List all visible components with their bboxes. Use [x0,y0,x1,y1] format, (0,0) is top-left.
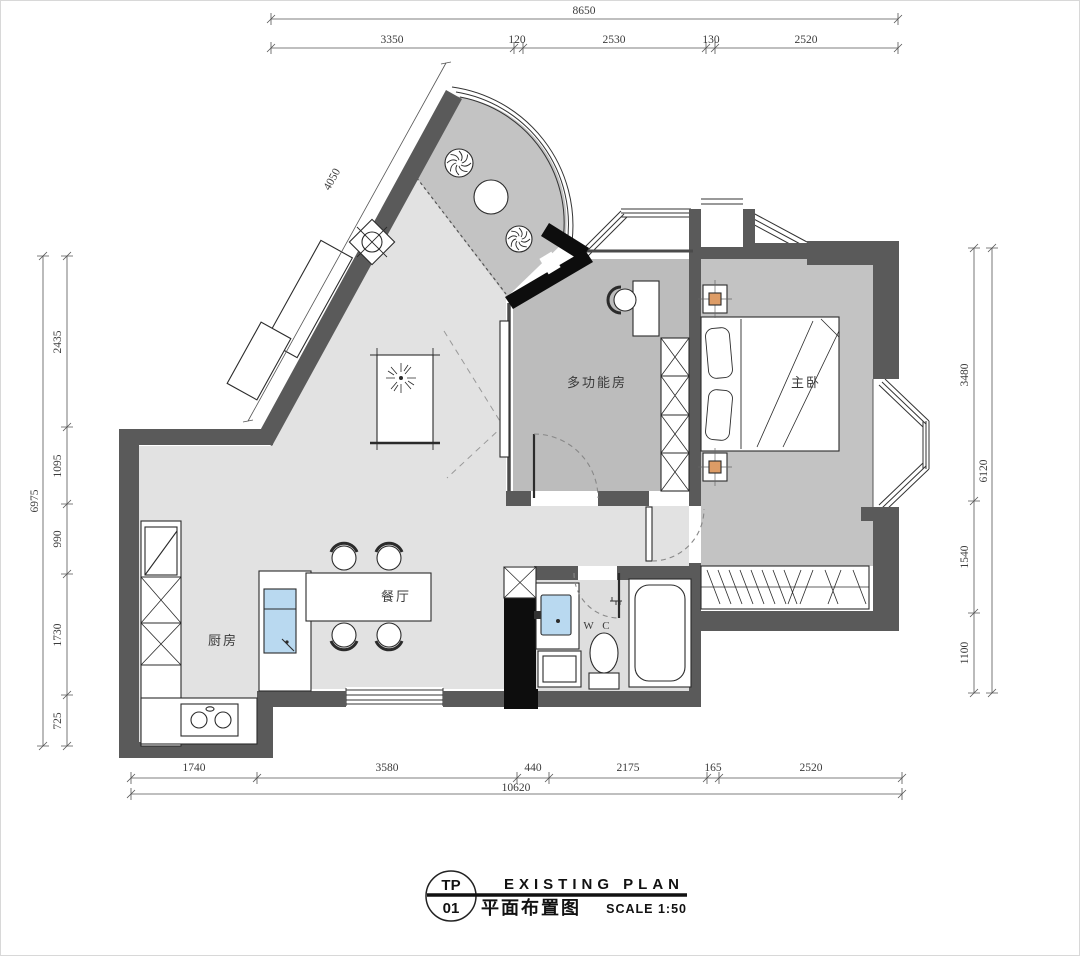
fan-icon [445,149,473,177]
dim-bottom-seg-1: 3580 [376,762,399,774]
sink-icon [541,595,571,635]
nightstand [698,448,732,486]
label-master-bedroom: 主卧 [791,375,821,390]
washing-machine-icon [538,651,581,687]
sheet-number: 01 [443,900,460,917]
bathtub-icon [629,579,691,687]
dim-left-seg-1: 1095 [52,454,64,477]
dim-top-seg-2: 2530 [603,34,626,46]
title-block: TP 01 EXISTING PLAN 平面布置图 SCALE 1:50 [426,871,687,921]
dim-right-total: 6120 [978,459,990,482]
dim-top-total: 8650 [573,5,596,17]
title-chinese: 平面布置图 [481,897,581,918]
ac-platform-window [701,199,743,204]
fan-icon [506,226,532,252]
toilet-icon [589,633,619,689]
dim-top-seg-1: 120 [508,34,526,46]
title-english: EXISTING PLAN [504,876,684,893]
bay-window [873,379,929,511]
tv-console [500,321,509,457]
pillow [705,389,733,441]
dim-top-seg-4: 2520 [795,34,818,46]
wc-vanity [534,583,579,649]
dim-top-seg-3: 130 [702,34,720,46]
scale-label: SCALE 1:50 [606,902,687,916]
top-horizontal-window [621,209,691,217]
dim-left-seg-2: 990 [52,530,64,548]
dim-left-seg-3: 1730 [52,623,64,646]
dim-left [37,252,73,750]
dim-left-seg-4: 725 [52,712,64,730]
dim-left-seg-0: 2435 [52,330,64,353]
dim-bottom-seg-2: 440 [524,762,542,774]
label-dining-room: 餐厅 [381,589,411,604]
label-kitchen: 厨房 [208,633,238,648]
bedroom-closet [701,566,869,609]
dim-bottom-seg-5: 2520 [800,762,823,774]
label-wc: W C [583,620,612,632]
dim-right-seg-2: 1100 [959,641,971,664]
nightstand [698,280,732,318]
stove-icon [181,704,238,736]
bottom-black-column [504,689,538,709]
dim-bottom-total: 10620 [502,782,531,794]
floor-plan-svg: 8650 3350 120 2530 130 2520 1740 3580 44… [1,1,1080,956]
dim-left-total: 6975 [29,489,41,512]
bottom-window [346,687,443,707]
dim-right-seg-1: 1540 [959,545,971,568]
dim-bottom-seg-0: 1740 [183,762,206,774]
mfr-wardrobe [661,338,689,491]
label-multifunction-room: 多功能房 [567,375,627,390]
fridge-icon [264,589,296,653]
kitchen-peninsula [259,571,311,691]
pipe-shaft [504,598,536,689]
sheet-prefix: TP [441,877,460,894]
living-table [370,348,440,450]
dim-right-seg-0: 3480 [959,363,971,386]
dim-diagonal-wall: 4050 [322,166,344,192]
dim-bottom-seg-4: 165 [704,762,722,774]
floor-plan-canvas: 8650 3350 120 2530 130 2520 1740 3580 44… [0,0,1080,956]
dim-bottom-seg-3: 2175 [617,762,640,774]
round-table-icon [474,180,508,214]
pillow [705,327,733,379]
dining-table [306,573,431,621]
dim-top-seg-0: 3350 [381,34,404,46]
